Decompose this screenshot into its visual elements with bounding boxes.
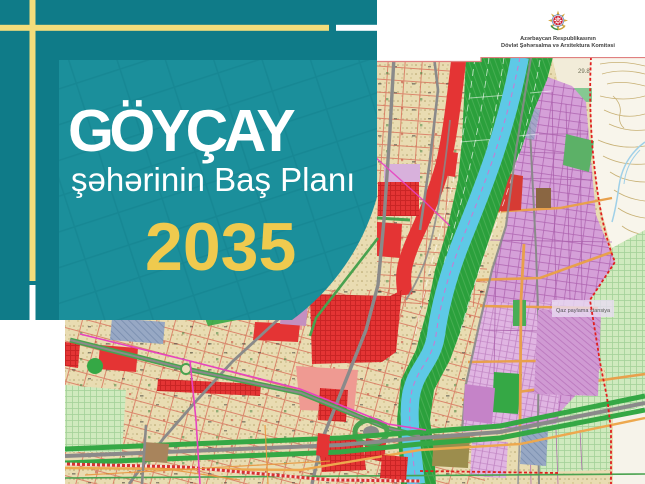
- svg-text:Dövlət Şəhərsalma və Arxitektu: Dövlət Şəhərsalma və Arxitektura Komitəs…: [501, 43, 615, 49]
- svg-text:Azərbaycan Respublikasının: Azərbaycan Respublikasının: [520, 36, 596, 42]
- svg-text:GÖYÇAY: GÖYÇAY: [68, 98, 295, 164]
- svg-text:Qaz paylama stansiya: Qaz paylama stansiya: [556, 308, 611, 314]
- svg-text:29.8: 29.8: [578, 69, 590, 75]
- svg-text:2035: 2035: [145, 209, 296, 285]
- svg-text:şəhərinin Baş Planı: şəhərinin Baş Planı: [71, 161, 355, 198]
